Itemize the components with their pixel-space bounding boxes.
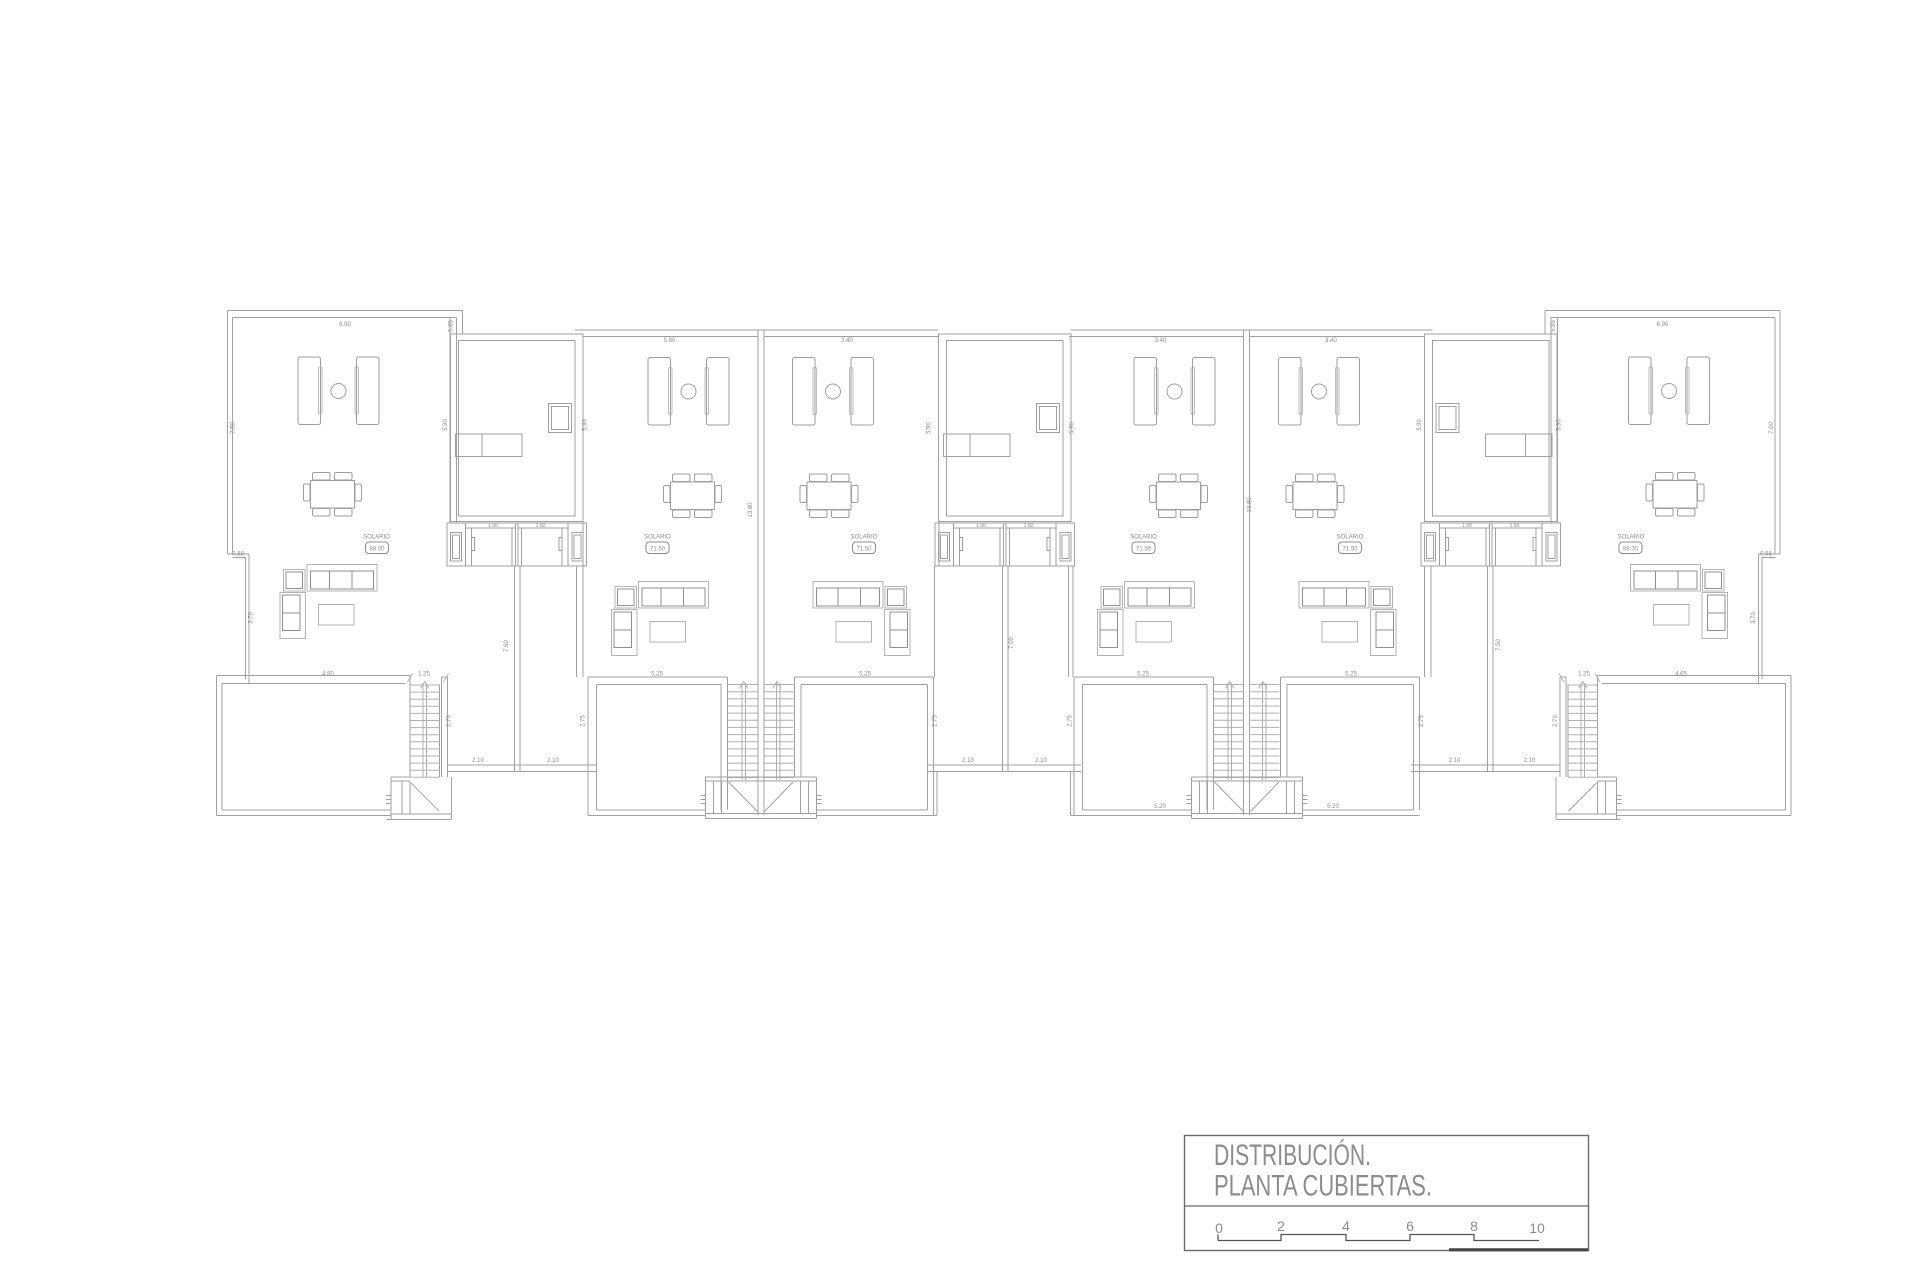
- svg-text:13.80: 13.80: [1247, 497, 1253, 513]
- svg-text:1.90: 1.90: [536, 523, 546, 529]
- svg-text:1.90: 1.90: [1510, 523, 1520, 529]
- svg-text:5.25: 5.25: [651, 672, 663, 678]
- svg-text:2.75: 2.75: [1068, 715, 1074, 727]
- svg-text:DISTRIBUCIÓN.: DISTRIBUCIÓN.: [1214, 1139, 1371, 1172]
- svg-text:3.40: 3.40: [1155, 338, 1167, 344]
- svg-text:13.80: 13.80: [748, 502, 754, 518]
- svg-text:0.88: 0.88: [232, 552, 244, 558]
- svg-text:88.00: 88.00: [369, 547, 385, 553]
- svg-text:88.00: 88.00: [1623, 547, 1639, 553]
- svg-text:3.70: 3.70: [1751, 612, 1757, 624]
- svg-text:SOLARIO: SOLARIO: [851, 535, 878, 541]
- svg-text:1.25: 1.25: [1578, 672, 1590, 678]
- svg-text:2.10: 2.10: [962, 758, 974, 764]
- svg-text:2.10: 2.10: [1035, 758, 1047, 764]
- svg-text:6.90: 6.90: [1657, 322, 1669, 328]
- svg-text:4.80: 4.80: [322, 672, 334, 678]
- svg-text:1.90: 1.90: [488, 523, 498, 529]
- svg-text:2.10: 2.10: [1524, 758, 1536, 764]
- svg-text:71.50: 71.50: [856, 547, 872, 553]
- svg-text:SOLARIO: SOLARIO: [644, 535, 671, 541]
- svg-text:5.90: 5.90: [1557, 419, 1563, 431]
- svg-text:PLANTA CUBIERTAS.: PLANTA CUBIERTAS.: [1214, 1170, 1432, 1203]
- svg-text:5.25: 5.25: [859, 672, 871, 678]
- svg-text:2.75: 2.75: [1419, 715, 1425, 727]
- svg-text:5.20: 5.20: [1327, 804, 1339, 810]
- svg-text:71.50: 71.50: [650, 547, 666, 553]
- svg-text:5.80: 5.80: [664, 338, 676, 344]
- svg-text:5.90: 5.90: [927, 422, 933, 434]
- svg-text:8: 8: [1470, 1218, 1478, 1234]
- svg-text:5.25: 5.25: [1345, 672, 1357, 678]
- svg-text:2.10: 2.10: [472, 758, 484, 764]
- svg-text:3.70: 3.70: [249, 612, 255, 624]
- svg-text:SOLARIO: SOLARIO: [1618, 535, 1645, 541]
- svg-text:0: 0: [1215, 1220, 1223, 1236]
- svg-text:2.75: 2.75: [581, 715, 587, 727]
- svg-text:2.70: 2.70: [447, 715, 453, 727]
- svg-text:4: 4: [1342, 1218, 1350, 1234]
- svg-text:2.75: 2.75: [933, 715, 939, 727]
- svg-text:7.00: 7.00: [231, 422, 237, 434]
- svg-text:7.50: 7.50: [1496, 639, 1502, 651]
- svg-text:5.90: 5.90: [583, 419, 589, 431]
- svg-text:0.88: 0.88: [1760, 552, 1772, 558]
- svg-text:1.90: 1.90: [1462, 523, 1472, 529]
- svg-text:2.70: 2.70: [1553, 715, 1559, 727]
- svg-text:5.85: 5.85: [449, 320, 455, 332]
- svg-text:7.00: 7.00: [1769, 422, 1775, 434]
- svg-text:7.00: 7.00: [1009, 637, 1015, 649]
- svg-text:1.90: 1.90: [976, 523, 986, 529]
- svg-text:SOLARIO: SOLARIO: [1337, 535, 1364, 541]
- svg-text:5.90: 5.90: [1417, 419, 1423, 431]
- svg-text:3.40: 3.40: [841, 338, 853, 344]
- svg-text:10: 10: [1529, 1220, 1545, 1236]
- svg-text:5.90: 5.90: [1070, 422, 1076, 434]
- svg-text:5.90: 5.90: [443, 419, 449, 431]
- svg-text:7.60: 7.60: [504, 640, 510, 652]
- svg-text:1.25: 1.25: [418, 672, 430, 678]
- svg-text:71.50: 71.50: [1136, 547, 1152, 553]
- svg-text:3.40: 3.40: [1325, 338, 1337, 344]
- svg-text:5.25: 5.25: [1137, 672, 1149, 678]
- svg-text:71.50: 71.50: [1342, 547, 1358, 553]
- svg-text:6.90: 6.90: [339, 322, 351, 328]
- svg-text:SOLARIO: SOLARIO: [1130, 535, 1157, 541]
- svg-text:4.65: 4.65: [1675, 672, 1687, 678]
- svg-text:5.20: 5.20: [1154, 804, 1166, 810]
- svg-text:SOLARIO: SOLARIO: [363, 535, 390, 541]
- svg-text:1.90: 1.90: [1024, 523, 1034, 529]
- svg-text:2: 2: [1277, 1218, 1285, 1234]
- svg-text:6: 6: [1406, 1218, 1414, 1234]
- svg-text:5.85: 5.85: [1551, 320, 1557, 332]
- svg-text:2.10: 2.10: [1449, 758, 1461, 764]
- svg-text:2.10: 2.10: [547, 758, 559, 764]
